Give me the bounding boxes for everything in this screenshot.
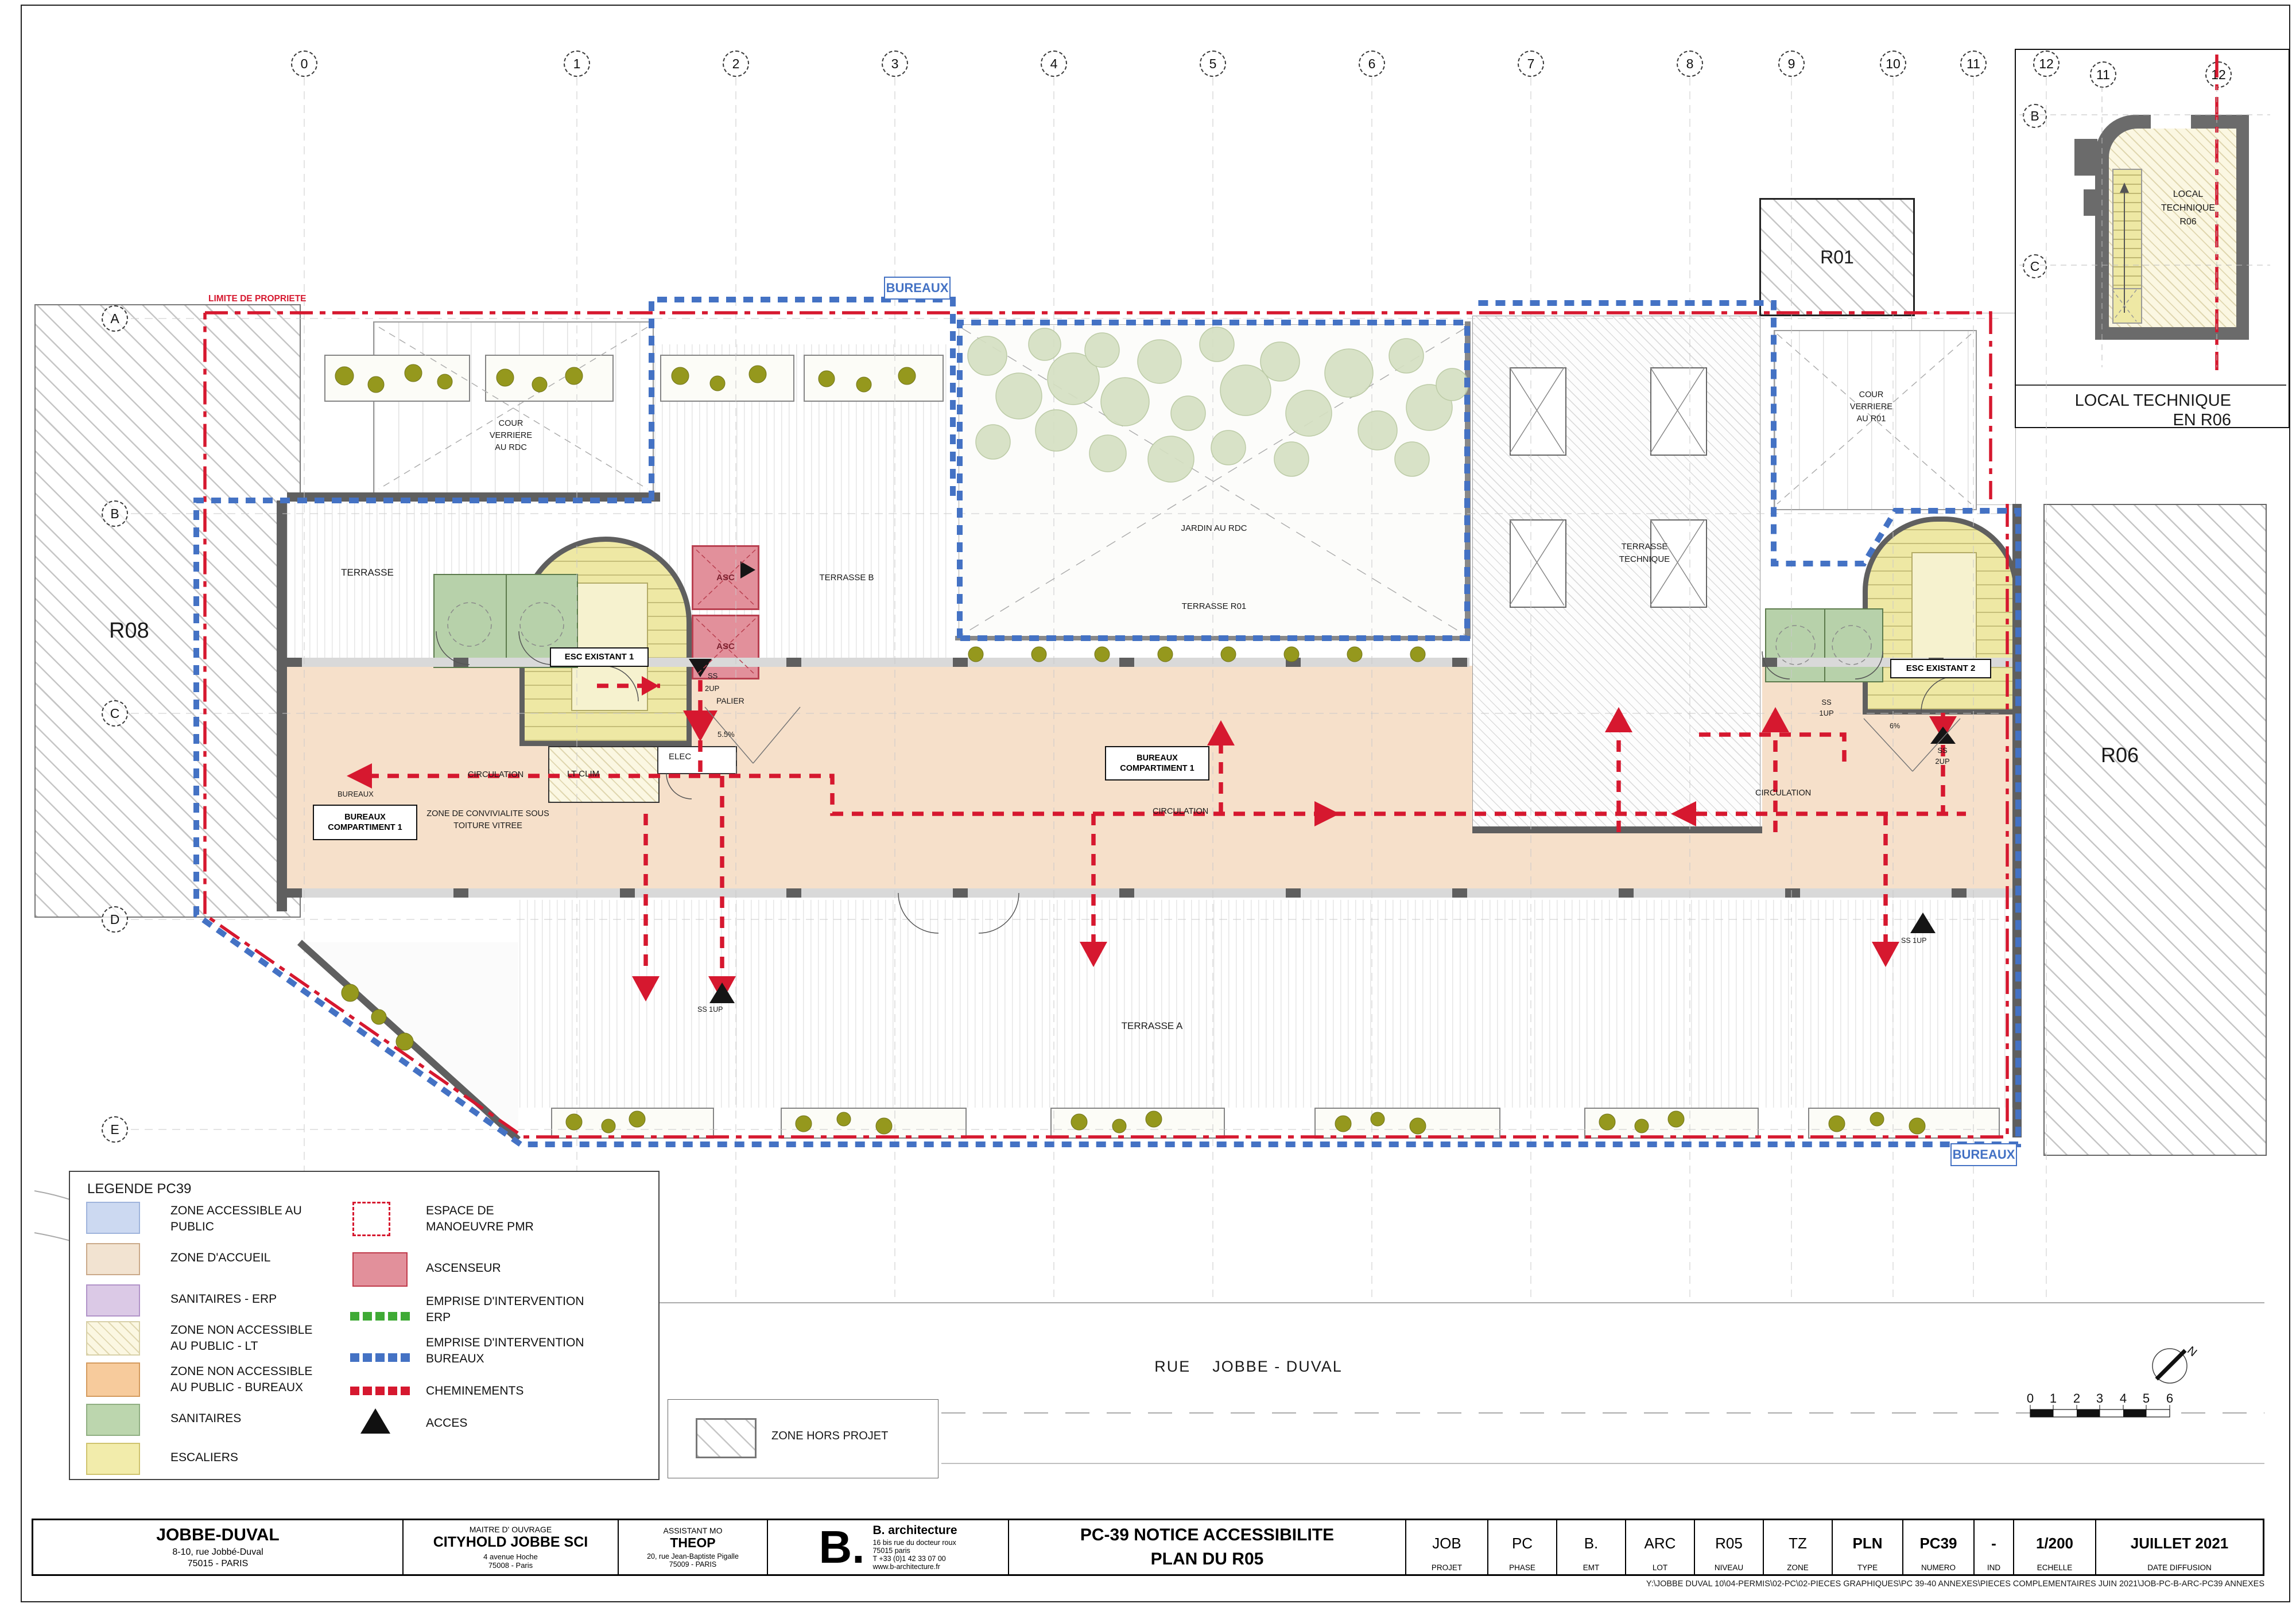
legend-label: ASCENSEUR [426,1260,501,1276]
tb-cell-label: ZONE [1787,1563,1809,1572]
inset-caption: EN R06 [2027,411,2231,430]
legend-label: ACCES [426,1415,467,1431]
grid-row-bubble: E [102,1116,128,1143]
tb-cell-projet: JOBPROJET [1406,1520,1488,1574]
palier-zone [692,684,824,747]
label-line: ZONE NON ACCESSIBLE [170,1322,312,1338]
room-lt-clim [548,746,660,803]
grid-col-label: 8 [1686,56,1694,72]
grid-col-label: 11 [1967,56,1980,72]
tb-owner: JOBBE-DUVAL 8-10, rue Jobbé-Duval 75015 … [33,1520,404,1574]
zone-hors-projet-label: ZONE HORS PROJET [771,1430,888,1443]
grid-row-label: D [110,912,120,927]
ss-label: SS [708,671,717,680]
architect-logo: B. [819,1524,864,1570]
legend-label: EMPRISE D'INTERVENTIONBUREAUX [426,1335,584,1367]
grid-col-label: 0 [301,56,308,72]
legend-dash-cheminements [350,1387,410,1395]
wall-garden-east [1465,321,1471,639]
grid-row-bubble: B [102,500,128,527]
label-line: SS [1901,937,1911,945]
tb-cell-niveau: R05NIVEAU [1695,1520,1764,1574]
bureaux-tag-bottom: BUREAUX [1950,1143,2017,1166]
tb-drawing-title: PC-39 NOTICE ACCESSIBILITE PLAN DU R05 [1009,1520,1406,1574]
label-line: 2UP [1924,756,1961,767]
tb-cell-ind: -IND [1975,1520,2014,1574]
planter [1808,1108,2000,1139]
zone-accueil-corridor [1472,832,1762,895]
inset-col-label: 12 [2211,67,2226,83]
grid-row-bubble: C [102,700,128,727]
tb-mo-role: MAITRE D' OUVRAGE [470,1525,552,1534]
label-line: ERP [426,1310,584,1326]
title-block: JOBBE-DUVAL 8-10, rue Jobbé-Duval 75015 … [32,1519,2264,1576]
street-name-part: JOBBE - DUVAL [1212,1358,1343,1375]
inset-wall-bump [2074,139,2097,176]
grid-col-bubble: 11 [1960,51,1987,77]
wall-garden-south [955,636,1468,640]
grid-col-bubble: 5 [1200,51,1226,77]
tb-cell-zone: TZZONE [1764,1520,1833,1574]
zone-hors-projet-box: ZONE HORS PROJET [668,1399,938,1478]
tb-assistant-mo: ASSISTANT MO THEOP 20, rue Jean-Baptiste… [619,1520,768,1574]
label-line: 1UP [1808,708,1845,719]
inset-row-label: B [2030,108,2039,124]
grid-col-bubble: 4 [1041,51,1067,77]
tb-architect-info: B. architecture 16 bis rue du docteur ro… [872,1524,957,1571]
tb-owner-addr2: 75015 - PARIS [188,1559,249,1569]
inset-col-label: 11 [2096,67,2110,83]
grid-col-label: 3 [891,56,899,72]
legend-swatch-escaliers [86,1443,140,1475]
tb-cell-label: PHASE [1509,1563,1535,1572]
tb-cell-label: DATE DIFFUSION [2147,1563,2212,1572]
neighbour-building-r06 [2043,504,2267,1156]
legend-label: SANITAIRES - ERP [170,1291,277,1307]
esc-existant-1-label: ESC EXISTANT 1 [550,647,649,667]
label-line: VERRIERE [1820,401,1923,413]
tb-cell-label: PROJET [1432,1563,1462,1572]
r01-label: R01 [1820,247,1854,268]
legend-dash-erp [350,1312,410,1321]
tb-cell-value: PLN [1853,1524,1883,1563]
tb-cell-value: JOB [1432,1524,1461,1563]
grid-col-bubble: 10 [1880,51,1906,77]
label-line: LOCAL [2145,188,2231,201]
legend-label: CHEMINEMENTS [426,1383,523,1399]
grid-col-label: 1 [573,56,581,72]
terrasse-b-label: TERRASSE B [806,573,887,583]
elec-label: ELEC [669,752,691,762]
legend-title: LEGENDE PC39 [87,1181,191,1197]
label-line: 1UP [709,1005,723,1014]
grid-col-bubble: 6 [1359,51,1385,77]
label-line: 1UP [1913,937,1926,945]
bureaux-small-label: BUREAUX [338,790,374,798]
slope-label: 5.5% [717,730,735,739]
tb-cell-numero: PC39NUMERO [1903,1520,1975,1574]
label-line: TERRASSE [1599,541,1690,553]
grid-col-bubble: 0 [291,51,317,77]
asc-label: ASC [703,642,748,651]
legend-label: ESCALIERS [170,1450,238,1466]
tb-cell-value: 1/200 [2036,1524,2073,1563]
label-line: ZONE ACCESSIBLE AU [170,1203,302,1219]
inset-col-bubble: 11 [2090,61,2116,88]
tb-cell-label: IND [1987,1563,2000,1572]
tb-amo-addr2: 75009 - PARIS [669,1560,716,1568]
tb-cell-type: PLNTYPE [1833,1520,1903,1574]
r08-label: R08 [109,619,149,643]
circulation-label: CIRCULATION [1153,807,1208,816]
label-line: TECHNIQUE [2145,201,2231,215]
sanitaires-est [1765,608,1883,682]
lt-clim-label: LT CLIM [567,769,599,779]
grid-row-label: E [110,1122,119,1137]
tb-cell-lot: ARCLOT [1626,1520,1695,1574]
inset-caption: LOCAL TECHNIQUE [2027,391,2231,410]
grid-col-bubble: 7 [1518,51,1544,77]
label-line: COUR [1820,389,1923,401]
zone-convivialite-label: ZONE DE CONVIVIALITE SOUS TOITURE VITREE [410,808,565,832]
grid-col-label: 7 [1527,56,1535,72]
legend-label: ZONE NON ACCESSIBLEAU PUBLIC - LT [170,1322,312,1354]
planter [551,1108,714,1139]
terrasse-r01-label: TERRASSE R01 [1157,601,1271,611]
grid-col-bubble: 2 [723,51,749,77]
tb-architect: B. B. architecture 16 bis rue du docteur… [768,1520,1009,1574]
drawing-sheet: R01 [0,0,2296,1623]
tb-cell-phase: PCPHASE [1488,1520,1557,1574]
tb-cell-value: PC39 [1919,1524,1957,1563]
asc-label: ASC [703,573,748,583]
zone-hors-projet-swatch [696,1418,757,1458]
tb-cell-value: PC [1512,1524,1533,1563]
legend-label: ZONE NON ACCESSIBLEAU PUBLIC - BUREAUX [170,1364,312,1396]
label-line: SS [1808,697,1845,708]
label-line: AU PUBLIC - LT [170,1338,312,1354]
grid-col-label: 9 [1788,56,1795,72]
legend-label: ESPACE DEMANOEUVRE PMR [426,1203,534,1235]
planter [485,355,614,402]
jardin-au-rdc [959,324,1469,640]
tb-cell-value: R05 [1715,1524,1743,1563]
tb-cell-label: LOT [1653,1563,1667,1572]
zone-accueil-corridor [281,666,1472,895]
label-line: BUREAUX [1137,753,1178,763]
tb-cell-value: B. [1584,1524,1599,1563]
label-line: COMPARTIMENT 1 [328,822,402,833]
legend-label: ZONE D'ACCUEIL [170,1250,270,1266]
tb-cell-value: TZ [1789,1524,1807,1563]
wall-east [2012,504,2022,1137]
label-line: PUBLIC [170,1219,302,1235]
tb-cell-emt: B.EMT [1557,1520,1626,1574]
planter [1584,1108,1759,1139]
inset-stair-landing [2112,288,2142,324]
grid-col-label: 2 [732,56,740,72]
tb-arch-addr1: 16 bis rue du docteur roux [872,1539,957,1547]
neighbour-building-r08 [34,304,301,918]
grid-row-label: A [110,311,119,327]
skylight [1510,519,1566,608]
planter [804,355,944,402]
sanitaires-partition [506,575,507,667]
grid-row-label: C [110,706,120,721]
stair1-void [571,583,648,711]
label-line: VERRIERE [459,430,563,442]
wall-west [277,500,287,911]
wall-technique-south [1472,826,1762,833]
inset-door-gap [2151,114,2191,129]
terrasse-technique-label: TERRASSE TECHNIQUE [1599,541,1690,566]
tb-arch-addr3: T +33 (0)1 42 33 07 00 [872,1555,957,1563]
bureaux-compartiment-label: BUREAUX COMPARTIMENT 1 [1105,746,1209,781]
circulation-label: CIRCULATION [1755,789,1811,798]
inset-col-bubble: 12 [2205,61,2232,88]
skylight [1650,367,1707,456]
legend-swatch-lt [86,1321,140,1356]
up-label: 2UP [705,684,719,693]
limite-de-propriete-label: LIMITE DE PROPRIETE [208,294,307,304]
terrasse-ouest-label: TERRASSE [327,567,408,578]
stair2-void [1911,552,1977,668]
label-line: EMPRISE D'INTERVENTION [426,1335,584,1351]
street-name-part: RUE [1154,1358,1190,1375]
inset-local-technique: LOCAL TECHNIQUE R06 11 12 B C LOCAL TECH… [2015,49,2290,428]
tb-amo-name: THEOP [670,1535,715,1551]
tb-owner-name: JOBBE-DUVAL [156,1525,279,1545]
label-line: ZONE DE CONVIVIALITE SOUS [410,808,565,820]
grid-col-bubble: 8 [1677,51,1703,77]
tb-amo-addr1: 20, rue Jean-Baptiste Pigalle [647,1552,739,1560]
legend-swatch-pmr [352,1202,390,1236]
label-line: R06 [2145,215,2231,229]
tb-maitre-ouvrage: MAITRE D' OUVRAGE CITYHOLD JOBBE SCI 4 a… [404,1520,619,1574]
planter [1314,1108,1500,1139]
palier-label: PALIER [716,696,744,705]
label-line: SS [1924,745,1961,756]
grid-col-label: 10 [1886,56,1901,72]
jardin-label: JARDIN AU RDC [1157,523,1271,533]
sanitaires-partition [1824,609,1825,681]
grid-col-label: 4 [1050,56,1058,72]
planter [1050,1108,1225,1139]
ss-2up-label: SS 2UP [1924,745,1961,767]
label-line: BUREAUX [426,1351,584,1367]
tb-mo-addr2: 75008 - Paris [488,1561,533,1570]
label-line: COUR [459,418,563,430]
legend-swatch-sanitaires-erp [86,1284,140,1317]
label-line: AU RDC [459,442,563,454]
inset-room-label: LOCAL TECHNIQUE R06 [2145,188,2231,229]
legend-label: ZONE ACCESSIBLE AUPUBLIC [170,1203,302,1235]
legend-label: EMPRISE D'INTERVENTIONERP [426,1294,584,1326]
legend-swatch-public [86,1202,140,1234]
label-line: COMPARTIMENT 1 [1120,763,1194,774]
label-line: EMPRISE D'INTERVENTION [426,1294,584,1310]
label-line: TOITURE VITREE [410,820,565,832]
esc-existant-2-label: ESC EXISTANT 2 [1890,659,1991,678]
legend-swatch-bureaux [86,1362,140,1397]
grid-col-label: 6 [1368,56,1376,72]
tb-cell-label: TYPE [1857,1563,1878,1572]
inset-caption-divider [2016,385,2286,386]
terrasse-a-label: TERRASSE A [1100,1020,1204,1032]
grid-col-bubble: 12 [2033,51,2060,77]
tb-cell-label: ECHELLE [2037,1563,2073,1572]
circulation-label: CIRCULATION [468,770,523,779]
street-name: RUE JOBBE - DUVAL [1099,1358,1398,1376]
planter [660,355,794,402]
slope-label: 6% [1890,722,1900,730]
tb-cell-value: ARC [1645,1524,1676,1563]
terrasse-a [519,900,2014,1108]
grid-col-bubble: 1 [564,51,590,77]
tb-amo-role: ASSISTANT MO [664,1526,723,1535]
grid-row-bubble: D [102,906,128,933]
tb-cell-value: JUILLET 2021 [2131,1524,2229,1563]
label-line: ESPACE DE [426,1203,534,1219]
legend-dash-bureaux [350,1353,410,1362]
tb-mo-name: CITYHOLD JOBBE SCI [433,1534,588,1551]
file-path: Y:\JOBBE DUVAL 10\04-PERMIS\02-PC\02-PIE… [32,1579,2264,1589]
facade-corridor-south [287,888,2015,898]
tb-cell-value: - [1991,1524,1996,1563]
legend-swatch-accueil [86,1243,140,1275]
wall-court-south [287,492,660,502]
label-line: TECHNIQUE [1599,553,1690,566]
grid-row-label: B [110,506,119,522]
inset-row-label: C [2030,259,2040,274]
label-line: AU PUBLIC - BUREAUX [170,1380,312,1396]
ss-1up-label: SS 1UP [1808,697,1845,719]
facade-corridor-north [287,658,1469,667]
tb-cell-label: NIVEAU [1715,1563,1743,1572]
drawing-title-line1: PC-39 NOTICE ACCESSIBILITE [1080,1525,1334,1545]
inset-row-bubble: B [2023,104,2047,128]
inset-row-bubble: C [2023,254,2047,278]
planter [781,1108,967,1139]
cour-verriere-r01-label: COUR VERRIERE AU R01 [1820,389,1923,425]
tb-cell-echelle: 1/200ECHELLE [2014,1520,2096,1574]
skylight [1510,367,1566,456]
label-line: BUREAUX [344,812,386,822]
legend-box: LEGENDE PC39 ZONE ACCESSIBLE AUPUBLIC ZO… [69,1171,660,1480]
grid-col-bubble: 9 [1778,51,1805,77]
label-line: AU R01 [1820,413,1923,425]
neighbour-block-r01: R01 [1759,198,1915,316]
legend-swatch-ascenseur [352,1252,408,1287]
grid-row-bubble: A [102,305,128,332]
tb-arch-addr2: 75015 paris [872,1547,957,1555]
grid-col-bubble: 3 [882,51,908,77]
legend-acces-triangle [360,1408,390,1434]
bureaux-tag-top: BUREAUX [884,277,951,300]
bureaux-compartiment-label: BUREAUX COMPARTIMENT 1 [313,805,417,840]
tb-owner-addr1: 8-10, rue Jobbé-Duval [172,1547,263,1558]
grid-col-label: 12 [2039,56,2054,72]
tb-arch-addr4: www.b-architecture.fr [872,1563,957,1571]
grid-col-label: 5 [1209,56,1217,72]
legend-label: SANITAIRES [170,1411,241,1427]
tb-cell-label: NUMERO [1921,1563,1956,1572]
planter [324,355,470,402]
tb-mo-addr1: 4 avenue Hoche [483,1552,538,1561]
tb-arch-name: B. architecture [872,1524,957,1537]
legend-swatch-sanitaires [86,1404,140,1436]
r06-label: R06 [2101,743,2139,767]
label-line: ZONE NON ACCESSIBLE [170,1364,312,1380]
ss-1up-label: SS 1UP [697,1005,723,1014]
label-line: SS [697,1005,707,1014]
cour-verriere-rdc-label: COUR VERRIERE AU RDC [459,418,563,454]
inset-wall-bump [2084,189,2097,216]
label-line: MANOEUVRE PMR [426,1219,534,1235]
tb-cell-label: EMT [1583,1563,1600,1572]
drawing-title-line2: PLAN DU R05 [1151,1550,1264,1569]
tb-cell-date: JUILLET 2021DATE DIFFUSION [2096,1520,2263,1574]
ss-1up-label: SS 1UP [1901,937,1927,945]
cour-verriere-rdc [373,321,654,496]
